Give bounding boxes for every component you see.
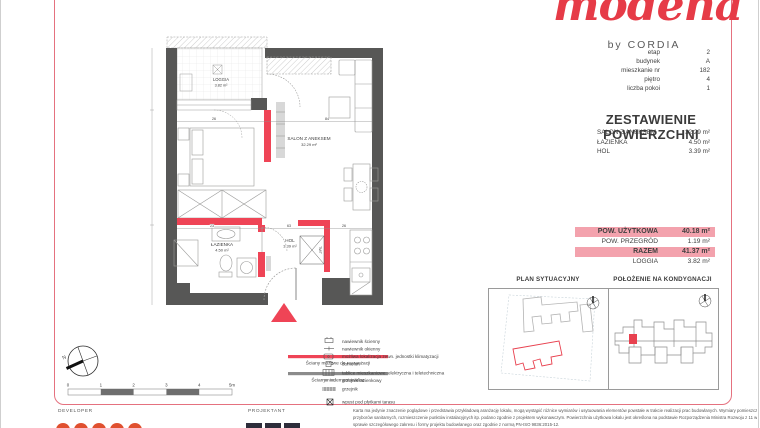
dim-kitchen: 26 [342,224,346,228]
compass-icon [67,346,99,376]
apartment-card: { "brand": {"logo": "modena", "byline": … [0,0,760,428]
modena-logo: modena [553,0,735,30]
site-plan-title: PLAN SYTUACYJNY [488,276,608,283]
room-label: ŁAZIENKA [597,138,689,148]
scale-tick: 3 [165,383,168,388]
kitchen-sink [352,268,370,282]
info-label: liczba pokoi [560,84,670,93]
room-areas-list: SALON Z ANEKSEM 32.29 m² ŁAZIENKA 4.50 m… [597,128,710,157]
info-value: 4 [670,75,710,84]
disclaimer-line: Karta ma jedynie znaczenie poglądowe i p… [353,407,757,414]
bathroom-area: 4.50 m² [215,248,229,253]
kitchen [350,230,372,295]
room-label: SALON Z ANEKSEM [597,128,685,138]
site-plan-panel [488,288,610,390]
loggia-label: LOGGIA [213,77,229,82]
loggia: LOGGIA 3.82 m² [177,48,262,100]
summary-row-usable: POW. UŻYTKOWA 40.18 m² [575,227,715,237]
legend-item: nawiewnik ścienny [342,339,381,344]
scale-tick: 1 [100,383,103,388]
washbasin [212,227,240,241]
summary-label: POW. PRZEGRÓD [575,237,658,247]
room-row: ŁAZIENKA 4.50 m² [597,138,710,148]
stove [355,237,361,243]
info-value: A [670,57,710,66]
toilet [220,255,232,271]
compass-north-label: N [62,354,68,361]
legend-item: możliwa lokalizacja zewn. jednostki klim… [342,354,439,359]
room-row: SALON Z ANEKSEM 32.29 m² [597,128,710,138]
bathroom-radiator [266,256,271,271]
info-value: 2 [670,48,710,57]
summary-value: 40.18 m² [658,227,715,237]
summary-label: LOGGIA [575,257,658,267]
entrance-door [264,268,296,300]
developer-logo [56,423,166,428]
window-vent-icon [324,347,334,351]
scale-tick: 0 [67,383,70,388]
legend-item: nawiewnik okienny [342,347,381,352]
legend-item: grzejnik [342,387,359,392]
summary-value: 41.37 m² [658,247,715,257]
terrace-drain-legend-icon [327,399,333,405]
disclaimer-text: Karta ma jedynie znaczenie poglądowe i p… [353,407,757,428]
info-label: piętro [560,75,670,84]
area-summary: POW. UŻYTKOWA 40.18 m² POW. PRZEGRÓD 1.1… [575,227,715,267]
disclaimer-line: sprawie szczegółowego zakresu i formy pr… [353,421,757,428]
loggia-area: 3.82 m² [215,84,229,88]
summary-label: POW. UŻYTKOWA [575,227,658,237]
room-value: 3.39 m² [689,147,710,157]
coffee-table [329,97,350,118]
room-row: HOL 3.39 m² [597,147,710,157]
info-row-pietro: piętro 4 [560,75,710,84]
info-label: budynek [560,57,670,66]
legend-red-wall-label: Ściany możliwe do rearanżacji [306,359,371,367]
canopy-hatch [167,37,267,48]
floor-location-title: POŁOŻENIE NA KONDYGNACJI [608,276,717,283]
info-label: etap [560,48,670,57]
floor-location-map [609,289,718,389]
legend-item: grzejnik łazienkowy [342,378,382,383]
washing-machine [237,258,256,277]
info-value: 182 [670,66,710,75]
page-right-edge [758,0,759,428]
hall-area: 3.39 m² [283,244,297,249]
info-label: mieszkanie nr [560,66,670,75]
disclaimer-line: przyborów sanitarnych, rozmieszczenie pu… [353,414,757,421]
room-label: HOL [597,147,689,157]
dining-table [353,164,370,210]
bed [190,128,254,186]
sofa [355,60,372,132]
unit-info-table: etap 2 budynek A mieszkanie nr 182 piętr… [560,48,710,93]
info-row-pokoje: liczba pokoi 1 [560,84,710,93]
room-value: 4.50 m² [689,138,710,148]
developer-label: DEVELOPER [58,409,93,414]
site-other-buildings [523,297,593,332]
designer-label: PROJEKTANT [248,409,285,414]
floor-location-panel [608,288,719,390]
summary-row-partitions: POW. PRZEGRÓD 1.19 m² [575,237,715,247]
summary-row-total: RAZEM 41.37 m² [575,247,715,257]
page-left-edge [0,0,1,428]
wall-vent-icon [325,337,333,343]
summary-label: RAZEM [575,247,658,257]
summary-row-loggia: LOGGIA 3.82 m² [575,257,715,267]
designer-logo [246,423,336,428]
wardrobe-top [267,57,331,74]
salon-area: 32.29 m² [301,142,317,147]
dim-salon: 84 [325,117,329,121]
dim-hall: 63 [287,224,291,228]
site-plan-map [489,289,609,389]
salon-label: SALON Z ANEKSEM [287,136,330,141]
info-value: 1 [670,84,710,93]
radiator-icon [322,387,336,391]
scale-tick: 5m [229,383,235,388]
shaft-label: TM/T [318,246,322,254]
unit-location-marker [629,334,637,344]
scale-tick: 4 [198,383,201,388]
summary-value: 3.82 m² [658,257,715,267]
radiator [276,102,285,158]
legend-item: wpust pod płytkami tarasu [342,400,396,405]
dim-bath: 23 [210,224,214,228]
site-highlighted-building [513,341,562,370]
site-compass-icon [587,296,599,309]
bathroom [174,227,287,277]
info-row-budynek: budynek A [560,57,710,66]
scale-tick: 2 [132,383,135,388]
dim-loggia-door: 26 [212,117,216,121]
scale-bar [68,389,232,395]
hall-label: HOL [285,238,295,243]
floor-plan: LOGGIA 3.82 m² [54,0,454,406]
entrance-triangle [271,303,297,322]
bathroom-label: ŁAZIENKA [211,242,234,247]
floor-compass-icon [699,294,711,307]
summary-value: 1.19 m² [658,237,715,247]
legend-item: tablice mieszkaniowe: elektryczna i tele… [342,371,445,376]
info-row-etap: etap 2 [560,48,710,57]
info-row-mieszkanie: mieszkanie nr 182 [560,66,710,75]
room-value: 32.29 m² [685,128,710,138]
legend-item: domofon [342,362,360,367]
